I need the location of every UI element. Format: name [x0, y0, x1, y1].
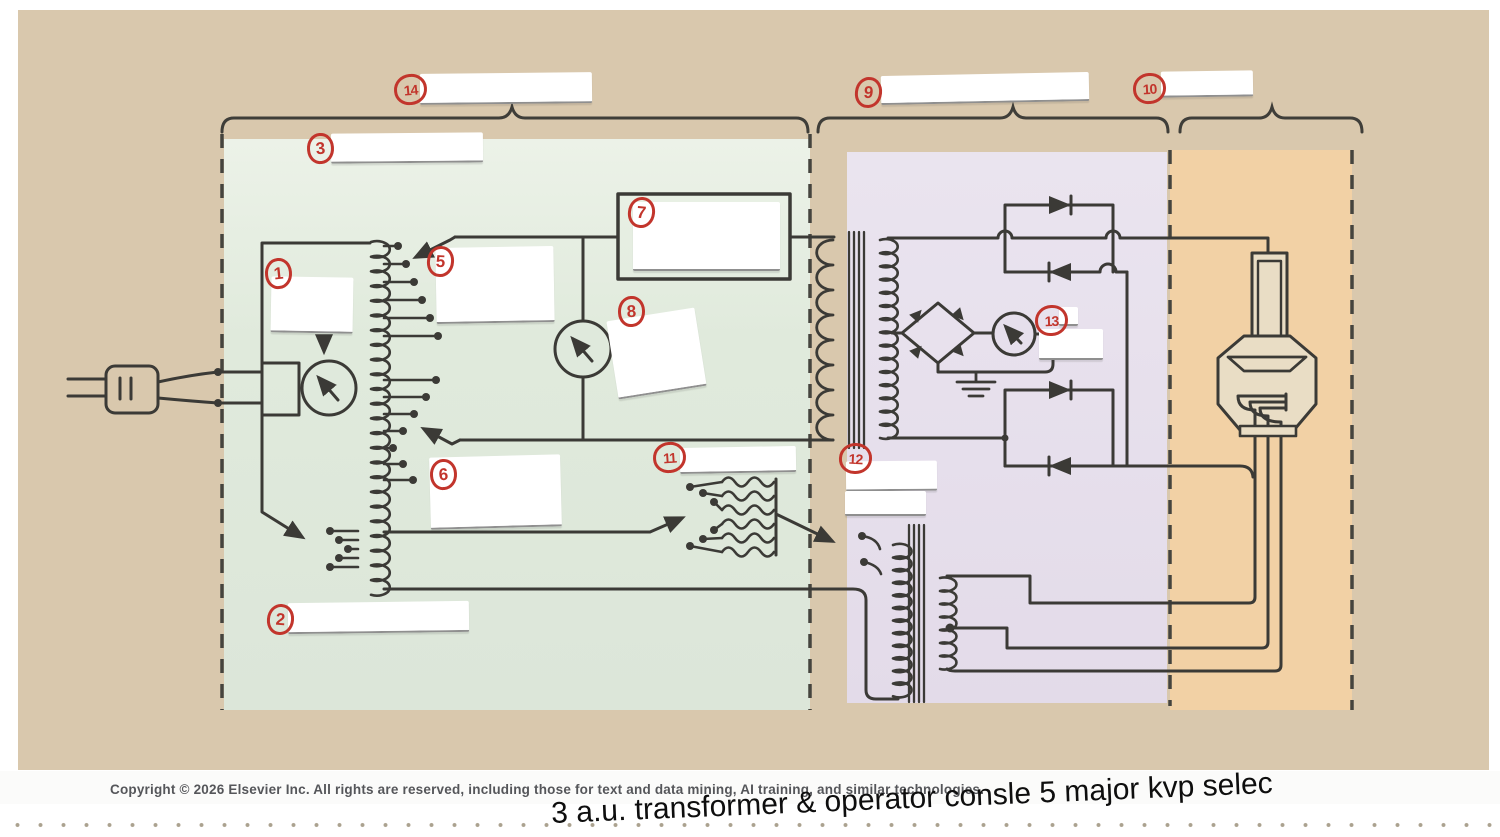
label-blank-10	[1161, 70, 1253, 97]
label-blank-11	[680, 446, 796, 474]
screenshot-page: 1 2 3 5 6 7 8 9 10 11 12 13 14 Copyright…	[0, 0, 1500, 837]
label-blank-3	[331, 132, 483, 163]
label-blank-12b	[845, 491, 926, 516]
label-blank-2	[288, 601, 469, 634]
label-blank-9	[881, 72, 1090, 105]
xray-circuit-diagram	[0, 0, 1500, 837]
label-blank-14	[420, 72, 592, 105]
